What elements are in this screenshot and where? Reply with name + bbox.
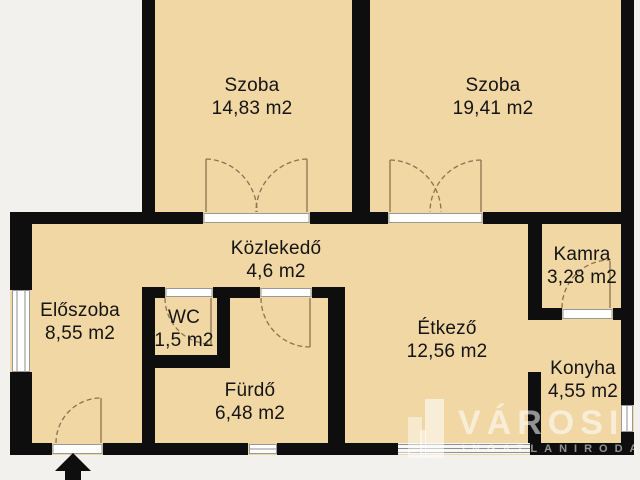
room-label-szoba-2: Szoba 19,41 m2 xyxy=(453,74,534,120)
room-area: 1,5 m2 xyxy=(154,329,213,352)
entrance-arrow xyxy=(55,453,91,480)
kitchen-window xyxy=(622,406,633,432)
hall-window xyxy=(13,291,30,372)
room-area: 12,56 m2 xyxy=(407,340,488,363)
room-name: Étkező xyxy=(407,317,488,340)
room-name: Szoba xyxy=(453,74,534,97)
room-area: 4,55 m2 xyxy=(548,380,618,403)
room-label-etkezo: Étkező 12,56 m2 xyxy=(407,317,488,363)
room-area: 14,83 m2 xyxy=(212,97,293,120)
room-label-kamra: Kamra 3,28 m2 xyxy=(547,243,617,289)
room-label-furdo: Fürdő 6,48 m2 xyxy=(215,379,285,425)
room-area: 4,6 m2 xyxy=(231,260,322,283)
room-name: Fürdő xyxy=(215,379,285,402)
room-name: Konyha xyxy=(548,357,618,380)
room-name: Szoba xyxy=(212,74,293,97)
room-label-eloszoba: Előszoba 8,55 m2 xyxy=(40,299,120,345)
room-area: 19,41 m2 xyxy=(453,97,534,120)
room-name: WC xyxy=(154,306,213,329)
floor-plan: Szoba 14,83 m2 Szoba 19,41 m2 Közlekedő … xyxy=(0,0,640,480)
room-label-szoba-1: Szoba 14,83 m2 xyxy=(212,74,293,120)
room-name: Kamra xyxy=(547,243,617,266)
room-name: Közlekedő xyxy=(231,237,322,260)
room-area: 8,55 m2 xyxy=(40,322,120,345)
room-label-wc: WC 1,5 m2 xyxy=(154,306,213,352)
room-label-kozlekedo: Közlekedő 4,6 m2 xyxy=(231,237,322,283)
room-area: 6,48 m2 xyxy=(215,402,285,425)
room-area: 3,28 m2 xyxy=(547,266,617,289)
bathroom-window xyxy=(250,445,277,454)
room-label-konyha: Konyha 4,55 m2 xyxy=(548,357,618,403)
room-name: Előszoba xyxy=(40,299,120,322)
